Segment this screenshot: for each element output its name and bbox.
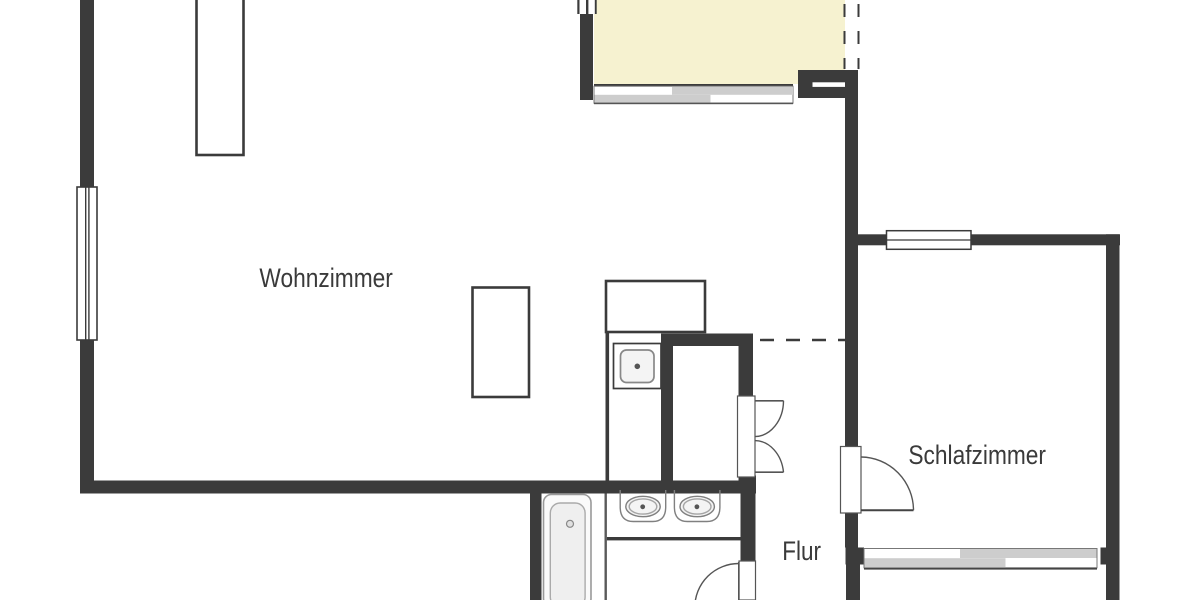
svg-text:Wohnzimmer: Wohnzimmer — [259, 263, 393, 293]
svg-text:Schlafzimmer: Schlafzimmer — [908, 440, 1046, 470]
svg-text:Flur: Flur — [782, 536, 821, 566]
